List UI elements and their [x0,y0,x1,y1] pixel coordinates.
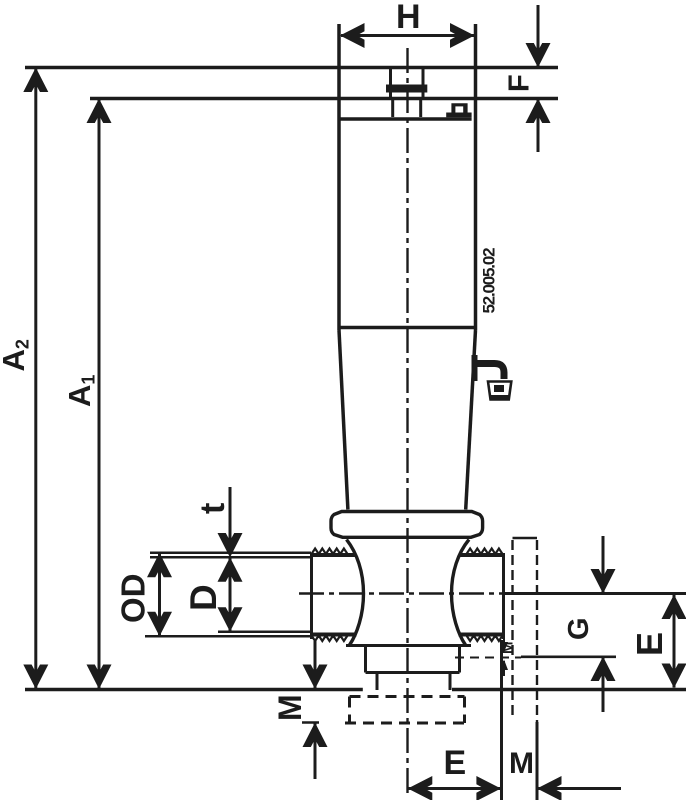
svg-text:E: E [444,744,467,782]
svg-text:OD: OD [115,574,152,624]
svg-text:H: H [396,0,421,36]
svg-text:E: E [629,632,670,656]
svg-text:G: G [563,617,595,640]
svg-text:F: F [504,74,536,92]
svg-text:M: M [509,747,534,780]
svg-text:D: D [183,584,224,611]
svg-text:52.005.02: 52.005.02 [480,248,499,314]
svg-text:M: M [272,694,308,721]
svg-text:t: t [194,503,232,514]
